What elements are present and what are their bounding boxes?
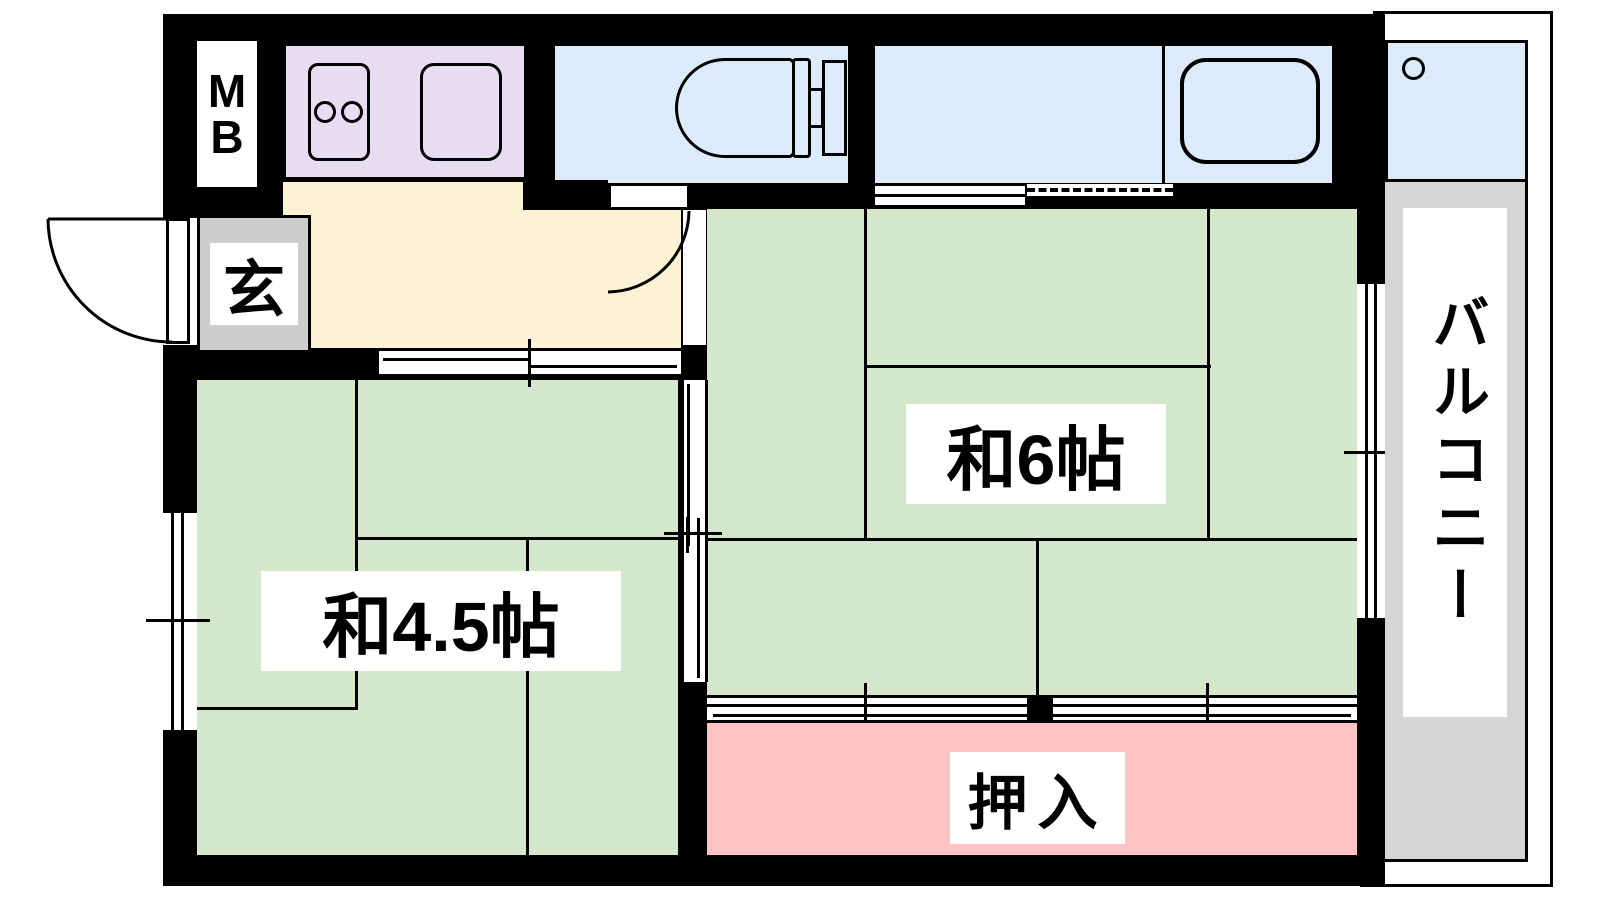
sink-icon [420, 63, 502, 161]
tatami-line [1036, 541, 1039, 695]
balcony-outline-bottom [1360, 884, 1553, 887]
meter-box: M B [197, 41, 257, 187]
tatami-line [864, 209, 867, 541]
entrance-door-leaf [166, 218, 190, 344]
entrance-door-swing-arc [48, 219, 172, 342]
balcony-label: バルコニー [1403, 208, 1507, 717]
meter-box-label-b: B [210, 114, 243, 160]
wall-segment [523, 180, 608, 210]
bathtub-icon [1180, 58, 1320, 164]
stove-burner-icon [314, 101, 336, 123]
room-6-label: 和6帖 [906, 404, 1166, 504]
sliding-door-center-tick [528, 339, 531, 387]
tatami-line [864, 365, 1211, 368]
genkan-label: 玄 [210, 243, 298, 325]
oshiire-label: 押入 [950, 752, 1125, 844]
sliding-door-center-tick [664, 532, 722, 535]
tatami-line [707, 538, 1357, 541]
genkan-area: 玄 [197, 215, 311, 353]
sliding-door-center-tick [686, 517, 689, 553]
balcony-outline-right [1550, 11, 1553, 887]
oshiire-door-center-post [1027, 695, 1053, 723]
room-45-label: 和4.5帖 [261, 571, 621, 671]
floor-plan: M B 玄 [0, 0, 1600, 900]
toilet-tank-icon [822, 60, 847, 156]
sliding-door-track [1053, 704, 1357, 707]
sliding-door-track [707, 704, 1027, 707]
washroom-sliding-door-track [875, 194, 1025, 197]
bath-dashed-line [1027, 188, 1173, 192]
stove-burner-icon [341, 101, 363, 123]
passage-opening [681, 210, 708, 345]
sliding-door-track [530, 365, 677, 368]
toilet-door-leaf [608, 183, 690, 210]
sliding-door-track [713, 714, 1027, 717]
window-center-tick [146, 619, 210, 622]
tatami-line [197, 707, 358, 710]
tatami-line [355, 537, 678, 540]
toilet-icon [675, 58, 795, 158]
tatami-line [1207, 209, 1210, 541]
sliding-door-track [697, 518, 700, 678]
faucet-circle-icon [1402, 57, 1425, 80]
sliding-door-track [383, 358, 530, 361]
balcony-outline-top [1373, 11, 1553, 14]
washroom [875, 46, 1162, 183]
meter-box-label-m: M [208, 68, 246, 114]
sliding-door-track [1053, 714, 1351, 717]
